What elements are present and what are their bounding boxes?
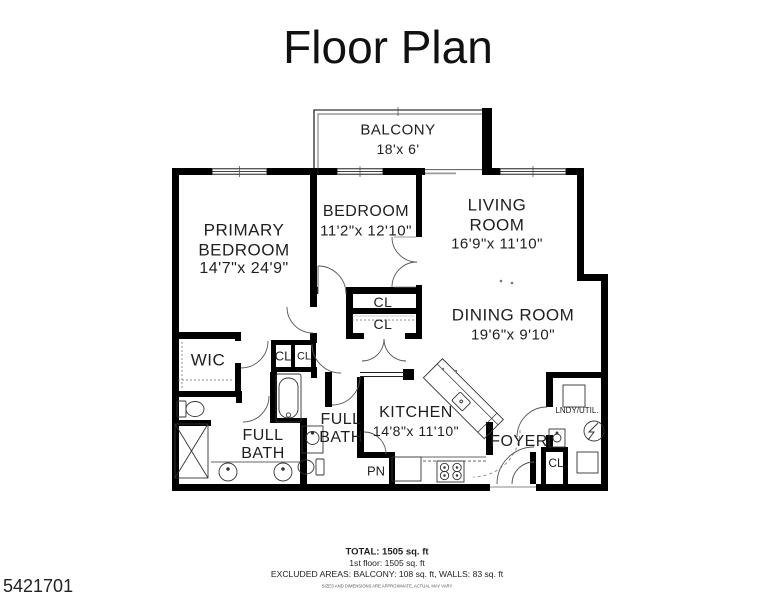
label-wic: WIC	[191, 352, 226, 369]
footer-excluded-areas: EXCLUDED AREAS: BALCONY: 108 sq. ft, WAL…	[271, 569, 503, 579]
label-full-bath-hall-1: FULL	[320, 412, 361, 428]
stove	[437, 461, 464, 482]
label-living-room-2: ROOM	[470, 217, 525, 234]
bedroom-double-door-arc-top	[392, 237, 417, 262]
kitchen-half-wall	[360, 373, 404, 377]
dryer	[577, 452, 598, 473]
label-dining-room: DINING ROOM	[452, 307, 575, 324]
closet-bifold-left-arc	[362, 339, 384, 361]
label-full-bath-hall-2: BATH	[319, 430, 362, 446]
label-foyer: FOYER	[490, 434, 548, 450]
label-balcony: BALCONY	[360, 123, 435, 138]
bathtub	[276, 374, 301, 422]
label-dining-room-dims: 19'6"x 9'10"	[471, 328, 555, 343]
label-bedroom: BEDROOM	[323, 204, 409, 220]
full-bath-hall-door-arc	[332, 377, 360, 405]
floor-plan-page: Floor Plan BALCONY 18'x 6' PRIMARY BEDRO…	[0, 0, 776, 600]
label-pantry: PN	[367, 465, 385, 478]
label-closet-upper: CL	[374, 295, 393, 309]
label-primary-bedroom-2: BEDROOM	[198, 242, 289, 259]
label-hall-closet-left: CL	[275, 350, 292, 363]
washer	[563, 385, 585, 407]
label-bedroom-dims: 11'2"x 12'10"	[320, 224, 412, 239]
double-vanity-sinks	[211, 462, 300, 481]
label-balcony-dims: 18'x 6'	[376, 142, 419, 156]
full-bath-primary-door-arc	[243, 396, 269, 422]
label-hall-closet-right: CL	[297, 352, 311, 363]
footer-total: TOTAL: 1505 sq. ft	[345, 547, 428, 558]
refrigerator	[392, 457, 421, 481]
photo-id: 5421701	[3, 576, 73, 597]
label-kitchen: KITCHEN	[379, 405, 453, 421]
label-full-bath-primary-2: BATH	[241, 446, 284, 462]
label-living-room-1: LIVING	[468, 197, 527, 214]
label-laundry: LNDY/UTIL.	[555, 407, 598, 415]
label-kitchen-dims: 14'8"x 11'10"	[373, 424, 459, 438]
footer-first-floor: 1st floor: 1505 sq. ft	[349, 558, 424, 568]
label-living-room-dims: 16'9"x 11'10"	[451, 237, 543, 252]
closet-bifold-right-arc	[384, 339, 406, 361]
label-primary-bedroom-1: PRIMARY	[204, 222, 285, 239]
primary-bedroom-door-arc	[287, 307, 313, 333]
entry-door-arc-outer	[497, 447, 534, 484]
bedroom-double-door-arc-bottom	[392, 262, 417, 287]
bedroom-door-arc	[318, 266, 346, 294]
label-closet-lower: CL	[374, 317, 393, 331]
toilet-primary	[177, 401, 204, 417]
label-full-bath-primary-1: FULL	[242, 428, 283, 444]
page-title: Floor Plan	[283, 24, 493, 70]
wic-door-arc	[241, 341, 268, 368]
label-primary-bedroom-dims: 14'7"x 24'9"	[199, 261, 288, 277]
label-laundry-closet: CL	[548, 457, 563, 469]
footer-disclaimer: SIZES AND DIMENSIONS ARE APPROXIMATE, AC…	[322, 584, 452, 589]
shower-stall	[175, 424, 208, 478]
